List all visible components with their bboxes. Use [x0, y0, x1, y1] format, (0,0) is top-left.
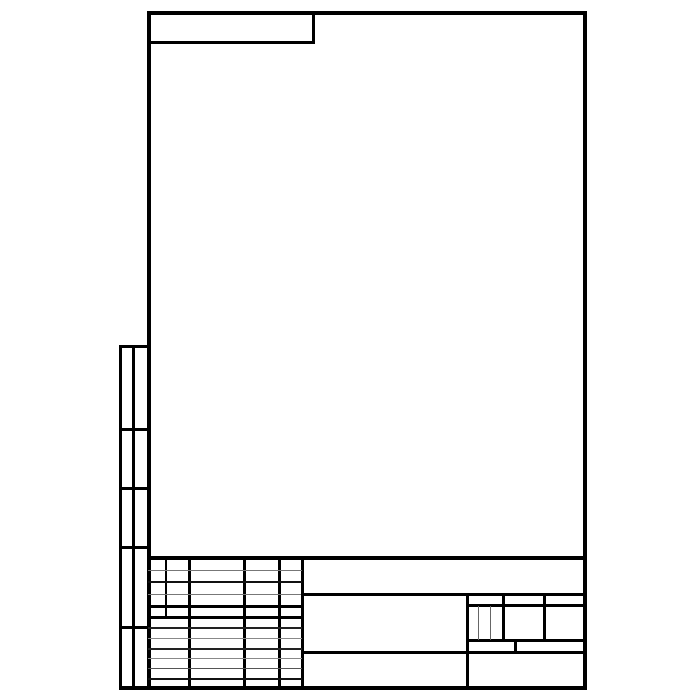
signature-table-row-line-1: [148, 627, 302, 629]
approval-table-row-line-3: [148, 594, 302, 595]
title-block-top-line: [147, 556, 587, 560]
organization-cell-top-line: [301, 651, 587, 654]
approval-table-row-line-1: [148, 570, 302, 571]
sheet-row-top-line: [466, 639, 587, 642]
signature-table-row-line-3: [148, 648, 302, 650]
scale-cell-left-line: [543, 594, 546, 641]
approval-table-row-line-5: [148, 616, 302, 619]
scale-header-bottom-line: [466, 604, 587, 607]
approval-table-col-line-3: [243, 558, 246, 686]
lit-cell-divider-1: [478, 606, 479, 640]
approval-table-col-line-4: [278, 558, 281, 686]
approval-table-right-line: [301, 558, 304, 686]
mass-cell-left-line: [502, 594, 505, 641]
signature-table-row-line-2: [148, 638, 302, 639]
sheet-count-divider-line: [514, 639, 517, 654]
approval-table-col-line-1: [165, 558, 167, 617]
signature-table-row-line-5: [148, 668, 302, 669]
lit-cell-divider-2: [490, 606, 491, 640]
approval-table-col-line-2: [188, 558, 191, 686]
approval-table-row-line-4: [148, 605, 302, 608]
drawing-sheet: [0, 0, 700, 700]
name-cell-right-line: [466, 594, 469, 686]
signature-table-row-line-4: [148, 658, 302, 659]
signature-table-row-line-6: [148, 678, 302, 680]
title-block: [0, 0, 700, 700]
approval-table-row-line-2: [148, 581, 302, 583]
